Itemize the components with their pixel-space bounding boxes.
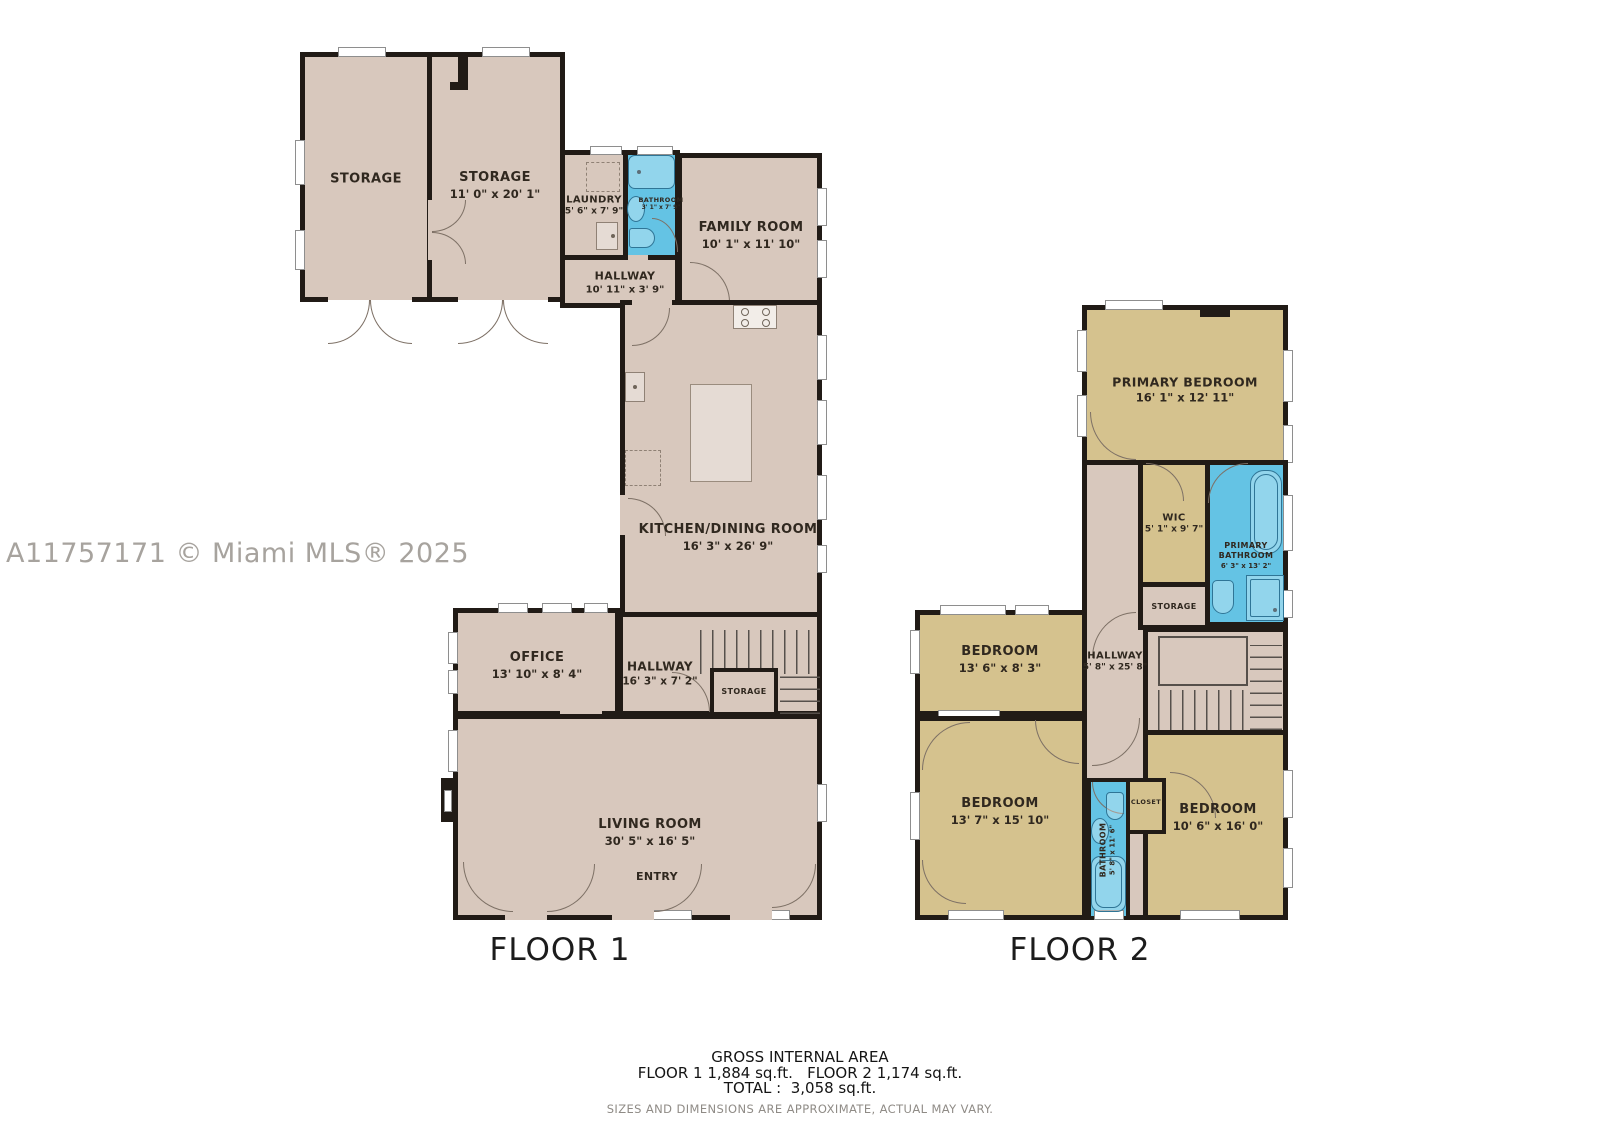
french-door-arc xyxy=(328,300,370,344)
french-door-arc xyxy=(458,300,503,344)
window xyxy=(542,603,572,613)
window xyxy=(1283,350,1293,402)
label-primary-bedroom: PRIMARY BEDROOM 16' 1" x 12' 11" xyxy=(1112,374,1258,405)
window xyxy=(1283,848,1293,888)
label-primary-bathroom: PRIMARY BATHROOM 6' 3" x 13' 2" xyxy=(1213,541,1279,571)
label-family: FAMILY ROOM 10' 1" x 11' 10" xyxy=(699,220,804,252)
stairwell-opening xyxy=(1158,636,1248,686)
label-bathroom-f2: BATHROOM 5' 8" x 11' 6" xyxy=(1098,823,1117,878)
label-entry: ENTRY xyxy=(636,870,678,884)
staircase xyxy=(780,676,820,714)
window xyxy=(448,632,458,664)
window xyxy=(1077,330,1087,372)
window xyxy=(817,335,827,380)
label-hallway-upper: HALLWAY 10' 11" x 3' 9" xyxy=(586,269,665,296)
label-bedroom-left: BEDROOM 13' 7" x 15' 10" xyxy=(951,796,1049,828)
window xyxy=(295,140,305,185)
label-hallway-lower: HALLWAY 16' 3" x 7' 2" xyxy=(622,659,697,688)
window xyxy=(1283,495,1293,551)
label-office: OFFICE 13' 10" x 8' 4" xyxy=(492,650,582,682)
staircase xyxy=(1250,645,1282,730)
kitchen-island xyxy=(690,384,752,482)
label-bedroom-right: BEDROOM 10' 6" x 16' 0" xyxy=(1173,802,1263,834)
window xyxy=(817,188,827,226)
floor-plan-page: A11757171 © Miami MLS® 2025 xyxy=(0,0,1600,1130)
label-laundry: LAUNDRY 5' 6" x 7' 9" xyxy=(565,194,623,219)
window xyxy=(817,545,827,573)
window xyxy=(1283,590,1293,618)
window xyxy=(910,792,920,840)
staircase xyxy=(1158,690,1248,730)
window xyxy=(1180,910,1240,920)
mls-watermark: A11757171 © Miami MLS® 2025 xyxy=(6,538,469,569)
window xyxy=(1077,395,1087,437)
total-area-line: TOTAL : 3,058 sq.ft. xyxy=(0,1081,1600,1097)
window xyxy=(817,475,827,520)
label-wic: WIC 5' 1" x 9' 7" xyxy=(1145,512,1203,537)
window xyxy=(1283,425,1293,463)
window xyxy=(448,670,458,694)
label-storage-f2: STORAGE xyxy=(1151,602,1196,612)
kitchen-sink-icon xyxy=(625,372,645,402)
shower-icon xyxy=(1246,575,1284,621)
label-kitchen: KITCHEN/DINING ROOM 16' 3" x 26' 9" xyxy=(639,522,818,554)
door-gap xyxy=(730,908,772,920)
label-storage-right: STORAGE 11' 0" x 20' 1" xyxy=(450,170,540,202)
label-bathroom-f1: BATHROOM 3' 1" x 7' 9" xyxy=(638,196,683,212)
door-gap xyxy=(628,255,648,265)
refrigerator-icon xyxy=(625,450,661,486)
window xyxy=(1283,770,1293,818)
label-hallway-f2: HALLWAY 5' 8" x 25' 8" xyxy=(1083,650,1148,675)
wall-stub xyxy=(450,82,468,90)
window xyxy=(940,605,1006,615)
window xyxy=(817,240,827,278)
window xyxy=(584,603,608,613)
label-closet: CLOSET xyxy=(1131,798,1161,806)
label-bedroom-top: BEDROOM 13' 6" x 8' 3" xyxy=(959,644,1041,676)
toilet-icon xyxy=(1106,792,1124,820)
floor1-title: FLOOR 1 xyxy=(490,932,631,968)
window xyxy=(910,630,920,674)
footer-area-summary: GROSS INTERNAL AREA FLOOR 1 1,884 sq.ft.… xyxy=(0,1050,1600,1116)
window xyxy=(444,790,452,812)
french-door-arc xyxy=(370,300,412,344)
label-storage-left: STORAGE xyxy=(330,172,402,189)
window xyxy=(1015,605,1049,615)
bathtub-icon xyxy=(628,155,675,189)
window xyxy=(448,730,458,772)
door-gap xyxy=(612,908,654,920)
label-living: LIVING ROOM 30' 5" x 16' 5" xyxy=(598,817,702,849)
window xyxy=(590,146,622,155)
disclaimer-text: SIZES AND DIMENSIONS ARE APPROXIMATE, AC… xyxy=(0,1102,1600,1116)
window xyxy=(338,47,386,57)
label-storage-under-stairs: STORAGE xyxy=(721,687,766,697)
floor2-title: FLOOR 2 xyxy=(1010,932,1151,968)
stove-icon xyxy=(733,305,777,329)
window xyxy=(948,910,1004,920)
appliance-icon xyxy=(586,162,620,192)
window xyxy=(498,603,528,613)
window xyxy=(637,146,673,155)
window xyxy=(817,400,827,445)
window xyxy=(295,230,305,270)
window xyxy=(817,784,827,822)
french-door-arc xyxy=(503,300,548,344)
window xyxy=(1105,300,1163,310)
laundry-sink-icon xyxy=(596,222,618,250)
wall-stub xyxy=(1200,305,1230,317)
toilet-icon xyxy=(1212,580,1234,614)
window xyxy=(482,47,530,57)
